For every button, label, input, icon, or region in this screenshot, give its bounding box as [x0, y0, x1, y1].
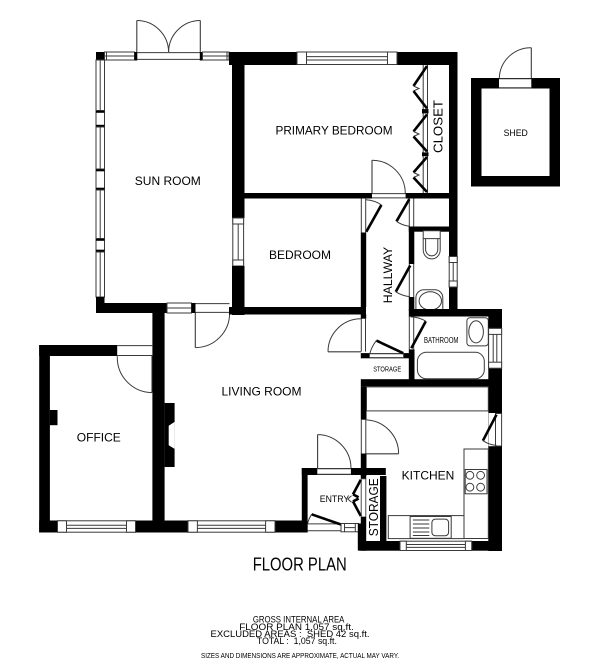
svg-text:FLOOR PLAN: FLOOR PLAN — [253, 553, 347, 574]
svg-text:STORAGE: STORAGE — [373, 365, 401, 374]
svg-text:LIVING ROOM: LIVING ROOM — [221, 385, 301, 399]
svg-text:BATHROOM: BATHROOM — [424, 336, 459, 345]
svg-text:ENTRY: ENTRY — [320, 494, 350, 504]
svg-text:PRIMARY BEDROOM: PRIMARY BEDROOM — [276, 123, 393, 137]
svg-text:OFFICE: OFFICE — [77, 431, 121, 445]
svg-text:STORAGE: STORAGE — [367, 478, 381, 536]
svg-text:CLOSET: CLOSET — [431, 100, 445, 153]
svg-text:TOTAL : 1,057 sq.ft.: TOTAL : 1,057 sq.ft. — [257, 636, 337, 646]
svg-text:SUN ROOM: SUN ROOM — [135, 174, 201, 188]
svg-text:HALLWAY: HALLWAY — [381, 247, 395, 304]
svg-text:SIZES AND DIMENSIONS ARE APPRO: SIZES AND DIMENSIONS ARE APPROXIMATE, AC… — [201, 651, 399, 660]
svg-text:BEDROOM: BEDROOM — [269, 248, 331, 262]
svg-text:KITCHEN: KITCHEN — [402, 468, 455, 482]
svg-text:SHED: SHED — [504, 128, 528, 139]
